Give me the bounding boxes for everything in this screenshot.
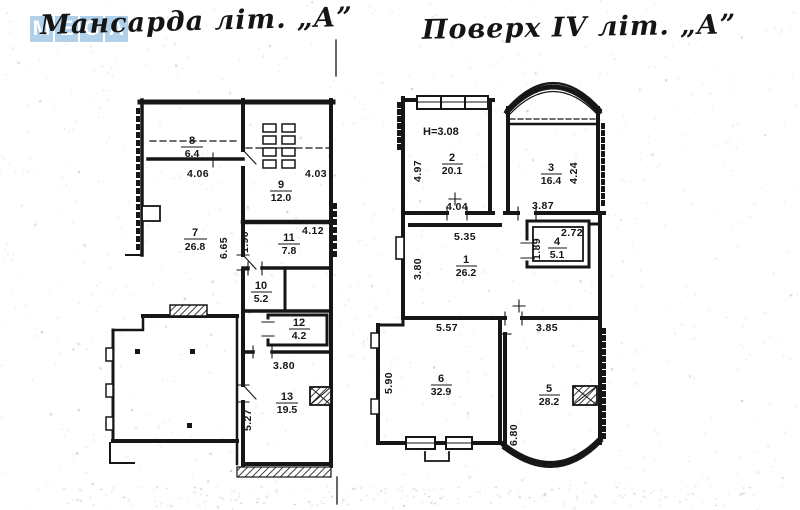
room-11-number: 11	[283, 232, 295, 244]
room-10-area: 5.2	[254, 293, 269, 305]
dim-3-80-right: 3.80	[412, 258, 424, 280]
room-8-number: 8	[189, 135, 195, 147]
room-3-number: 3	[548, 162, 554, 174]
dim-3-87: 3.87	[532, 200, 554, 212]
dim-5-90: 5.90	[383, 372, 395, 394]
dim-1-90: 1.90	[239, 231, 251, 253]
dim-4-06: 4.06	[187, 168, 209, 180]
room-3-area: 16.4	[541, 175, 562, 187]
room-8-area: 6.4	[185, 148, 200, 160]
right-plan-labels: Н=3.08 2 20.1 4.97 4.04 3 16.4 4.24 3.87…	[383, 126, 583, 446]
dim-5-35: 5.35	[454, 231, 476, 243]
dim-5-57: 5.57	[436, 322, 458, 334]
ceiling-height-note: Н=3.08	[423, 126, 459, 138]
room-13-area: 19.5	[277, 404, 298, 416]
room-4-area: 5.1	[550, 249, 565, 261]
room-9-number: 9	[278, 179, 284, 191]
room-7-area: 26.8	[185, 241, 206, 253]
dim-4-03: 4.03	[305, 168, 327, 180]
dim-4-24: 4.24	[568, 162, 580, 184]
stair-symbol	[263, 124, 295, 168]
room-12-number: 12	[293, 317, 305, 329]
dim-4-12: 4.12	[302, 225, 324, 237]
room-5-number: 5	[546, 383, 552, 395]
room-13-number: 13	[281, 391, 293, 403]
room-2-area: 20.1	[442, 165, 463, 177]
right-plan-walls	[371, 83, 604, 467]
dim-3-80-left: 3.80	[273, 360, 295, 372]
dim-3-85: 3.85	[536, 322, 558, 334]
dim-4-04: 4.04	[446, 201, 468, 213]
dim-4-97: 4.97	[412, 160, 424, 182]
room-5-area: 28.2	[539, 396, 560, 408]
room-7-number: 7	[192, 227, 198, 239]
dim-1-89: 1.89	[531, 238, 543, 260]
room-11-area: 7.8	[282, 245, 297, 257]
room-10-number: 10	[255, 280, 267, 292]
dim-6-80: 6.80	[508, 424, 520, 446]
right-plan-title: Поверх ІV літ. „А”	[422, 9, 737, 45]
room-1-area: 26.2	[456, 267, 477, 279]
room-4-number: 4	[554, 236, 561, 248]
left-plan-labels: 8 6.4 4.06 9 12.0 4.03 7 26.8 6.65 1.90 …	[181, 135, 327, 431]
room-12-area: 4.2	[292, 330, 307, 342]
room-6-area: 32.9	[431, 386, 452, 398]
floor-plans-drawing: 8 6.4 4.06 9 12.0 4.03 7 26.8 6.65 1.90 …	[0, 0, 800, 510]
dim-2-72: 2.72	[561, 227, 583, 239]
room-1-number: 1	[463, 254, 469, 266]
dim-6-65: 6.65	[218, 237, 230, 259]
room-9-area: 12.0	[271, 192, 292, 204]
left-plan-walls	[106, 40, 337, 504]
dim-5-27: 5.27	[242, 409, 254, 431]
room-6-number: 6	[438, 373, 444, 385]
scanned-floorplan-page: M E G A Мансарда літ. „А” Поверх ІV літ.…	[0, 0, 800, 510]
room-2-number: 2	[449, 152, 455, 164]
